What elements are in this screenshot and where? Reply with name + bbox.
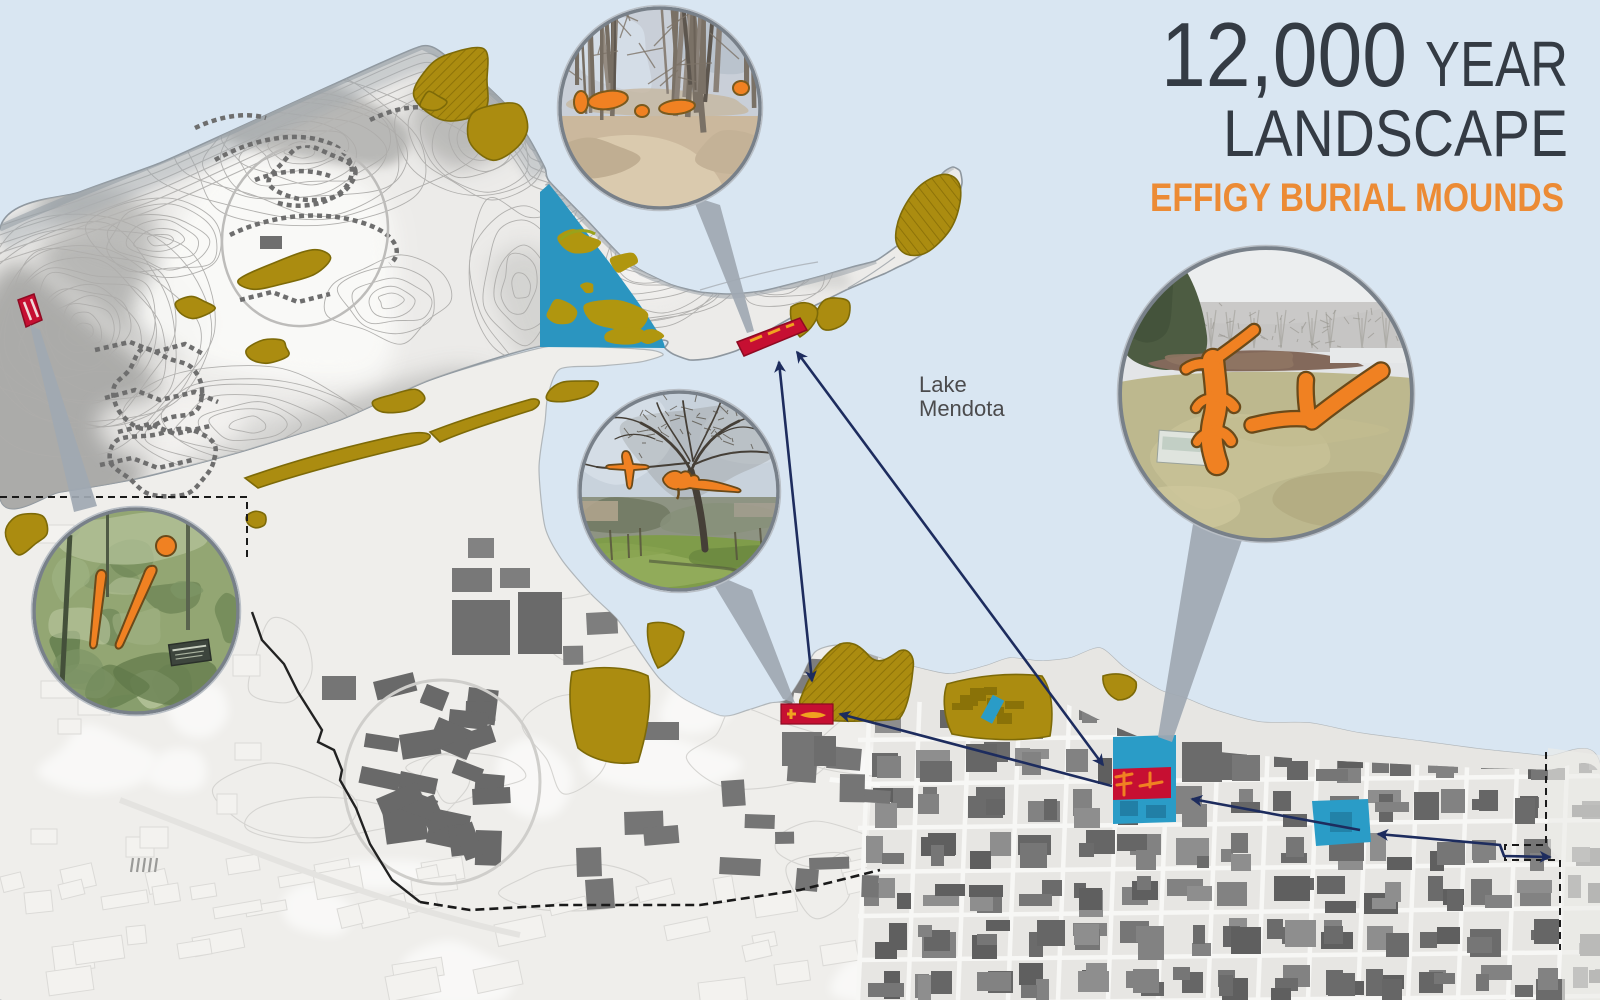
svg-text:Lake: Lake — [919, 372, 967, 397]
svg-text:LANDSCAPE: LANDSCAPE — [1223, 96, 1568, 170]
svg-text:EFFIGY BURIAL MOUNDS: EFFIGY BURIAL MOUNDS — [1150, 176, 1564, 220]
svg-text:YEAR: YEAR — [1425, 28, 1568, 100]
svg-text:12,000: 12,000 — [1161, 5, 1407, 106]
svg-text:Mendota: Mendota — [919, 396, 1005, 421]
